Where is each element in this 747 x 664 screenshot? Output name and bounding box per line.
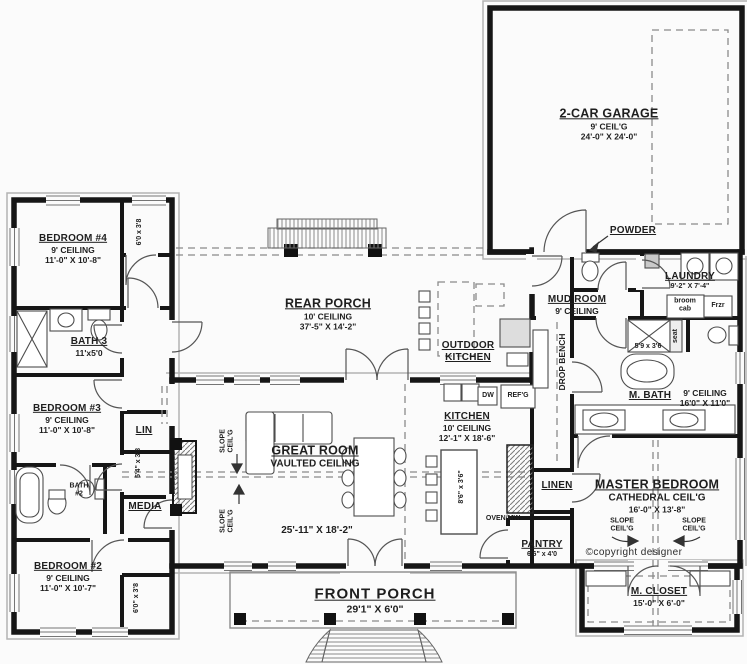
room-label-bedroom4: BEDROOM #4 9' CEILING 11'-0" X 10'-8" — [39, 233, 107, 265]
floor-plan-drawing — [0, 0, 747, 664]
drop-bench-label: DROP BENCH — [557, 334, 567, 391]
room-name: MASTER BEDROOM — [595, 477, 719, 492]
room-ceiling: 10' CEILING — [443, 423, 491, 433]
room-label-media: MEDIA — [128, 501, 161, 513]
room-name: BEDROOM #4 — [39, 233, 107, 245]
room-name: M. CLOSET — [631, 586, 687, 598]
room-ceiling: 9' CEIL'G — [590, 121, 627, 131]
room-name: BATH 3 — [71, 336, 108, 348]
copyright-text: ©copyright designer — [586, 547, 683, 559]
room-label-bath2: BATH #2 — [70, 483, 89, 500]
room-name: LAUNDRY — [665, 271, 715, 283]
room-label-linen: LINEN — [542, 480, 573, 492]
room-label-mud-room: MUD ROOM 9' CEILING — [548, 294, 606, 316]
room-dims: 11'-0" X 10'-8" — [39, 425, 95, 435]
room-ceiling: VAULTED CEILING — [270, 459, 359, 471]
room-label-outdoor-kitchen: OUTDOOR KITCHEN — [442, 340, 495, 364]
room-name: MUD ROOM — [548, 294, 606, 306]
slope-ceiling-label-great-lower: SLOPE CEIL'G — [220, 509, 237, 533]
room-dims: 11'-0" X 10'-7" — [40, 583, 96, 593]
great-room-dims: 25'-11" X 18'-2" — [281, 525, 353, 537]
room-label-front-porch: FRONT PORCH 29'1" X 6'0" — [315, 586, 436, 617]
fridge-label: REF'G — [507, 392, 528, 400]
room-name: 2-CAR GARAGE — [560, 106, 659, 121]
room-name: POWDER — [610, 225, 656, 237]
room-ceiling: 9' CEILING — [51, 245, 95, 255]
room-dims: 6'6" x 4'0 — [527, 551, 557, 559]
room-label-laundry: LAUNDRY 9'-2" X 7'-4" — [665, 271, 715, 291]
room-label-bedroom2: BEDROOM #2 9' CEILING 11'-0" X 10'-7" — [34, 561, 102, 593]
room-dims: 12'-1" X 18'-6" — [439, 433, 496, 443]
dishwasher-label: DW — [482, 392, 494, 400]
broom-cab-label: broom cab — [674, 298, 696, 315]
room-name: FRONT PORCH — [315, 586, 436, 604]
room-label-master-bedroom: MASTER BEDROOM CATHEDRAL CEIL'G 16'-0" X… — [595, 477, 719, 514]
shower-seat-label: seat — [672, 329, 680, 343]
room-dims: 11'-0" X 10'-8" — [45, 255, 101, 265]
room-label-great-room: GREAT ROOM VAULTED CEILING — [270, 444, 359, 471]
room-ceiling: 9' CEILING — [45, 415, 89, 425]
slope-ceiling-label-master-left: SLOPE CEIL'G — [610, 518, 634, 535]
room-ceiling: 9' CEILING — [46, 573, 90, 583]
master-shower-dims: 5'9 x 3'6 — [635, 343, 662, 351]
room-ceiling: 9' CEILING — [683, 388, 727, 398]
room-label-master-bath: M. BATH — [629, 390, 671, 402]
room-dims: 16'0" X 11'0" — [680, 398, 730, 408]
room-ceiling: 9' CEILING — [555, 306, 599, 316]
room-label-garage: 2-CAR GARAGE 9' CEIL'G 24'-0" X 24'-0" — [560, 106, 659, 141]
kitchen-island-dims: 8'6" x 3'6" — [458, 470, 466, 503]
room-dims: 9'-2" X 7'-4" — [671, 283, 710, 291]
freezer-label: Frzr — [711, 302, 724, 310]
room-label-powder: POWDER — [610, 225, 656, 237]
room-name: GREAT ROOM — [271, 444, 358, 459]
room-label-pantry: PANTRY 6'6" x 4'0 — [521, 539, 562, 559]
room-label-master-closet: M. CLOSET 15'-0" X 6'-0" — [631, 586, 687, 608]
room-dims: 29'1" X 6'0" — [347, 604, 404, 617]
master-bath-info: 9' CEILING 16'0" X 11'0" — [680, 388, 730, 408]
room-label-kitchen: KITCHEN 10' CEILING 12'-1" X 18'-6" — [439, 411, 496, 443]
room-name: BEDROOM #2 — [34, 561, 102, 573]
closet-dims-bedroom4: 6'0 x 3'8 — [136, 219, 144, 246]
closet-dims-bedroom3: 5'4" x 3'8 — [135, 448, 143, 478]
room-dims: 15'-0" X 6'-0" — [633, 598, 685, 608]
slope-ceiling-label-master-right: SLOPE CEIL'G — [682, 518, 706, 535]
room-label-lin: LIN — [136, 425, 153, 437]
room-dims: 11'x5'0 — [75, 348, 102, 358]
floor-plan: 2-CAR GARAGE 9' CEIL'G 24'-0" X 24'-0" P… — [0, 0, 747, 664]
room-label-bedroom3: BEDROOM #3 9' CEILING 11'-0" X 10'-8" — [33, 403, 101, 435]
closet-dims-bedroom2: 6'0" x 3'8 — [133, 583, 141, 613]
slope-ceiling-label-great-upper: SLOPE CEIL'G — [220, 429, 237, 453]
room-ceiling: CATHEDRAL CEIL'G — [608, 492, 705, 504]
room-name: KITCHEN — [444, 411, 490, 423]
room-label-rear-porch: REAR PORCH 10' CEILING 37'-5" X 14'-2" — [285, 296, 371, 331]
room-dims: 16'-0" X 13'-8" — [629, 504, 686, 514]
room-name: BEDROOM #3 — [33, 403, 101, 415]
room-ceiling: 10' CEILING — [304, 311, 352, 321]
room-dims: 37'-5" X 14'-2" — [300, 322, 357, 332]
room-name: REAR PORCH — [285, 296, 371, 311]
room-name: PANTRY — [521, 539, 562, 551]
room-dims: 24'-0" X 24'-0" — [581, 132, 638, 142]
oven-microwave-label: OVEN/MW — [486, 515, 520, 523]
room-label-bath3: BATH 3 11'x5'0 — [71, 336, 108, 358]
